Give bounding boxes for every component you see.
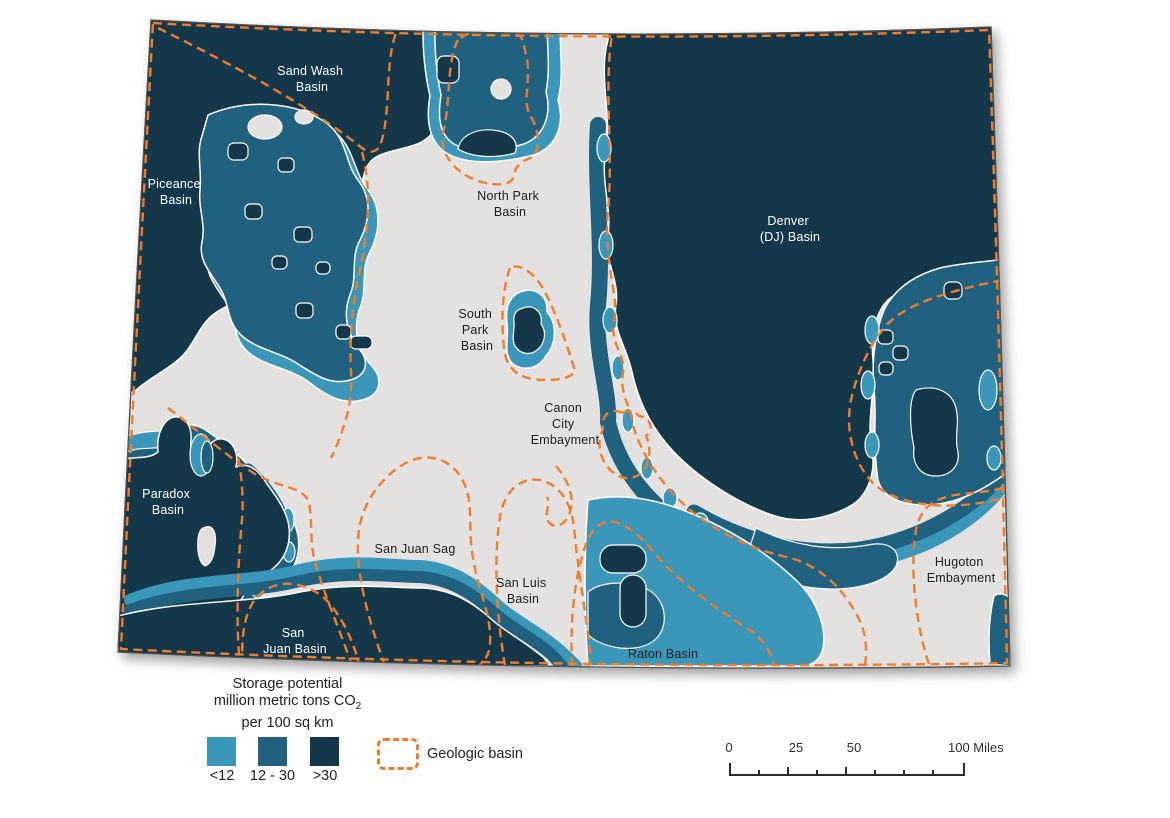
legend-title-line3: per 100 sq km xyxy=(180,715,395,732)
scale-bar-line xyxy=(729,774,965,776)
scale-bar-tick xyxy=(729,763,731,776)
scale-bar-tick xyxy=(787,767,789,776)
raton-dark-pill xyxy=(620,575,646,627)
scale-bar-tick xyxy=(845,767,847,776)
scale-tick-label-50: 50 xyxy=(840,740,868,755)
legend-class-label-gt30: >30 xyxy=(306,768,344,784)
scale-bar-tick xyxy=(874,770,876,776)
paradox-notch-medium xyxy=(201,441,213,473)
scale-tick-label-0: 0 xyxy=(722,740,736,755)
raton-dark-spot xyxy=(600,545,646,573)
scale-bar-tick xyxy=(903,770,905,776)
legend-title-line1: Storage potential xyxy=(180,676,395,693)
region-left-edge-light xyxy=(112,62,139,113)
scale-bar-tick xyxy=(816,770,818,776)
colorado-storage-map: Sand Wash Basin Piceance Basin North Par… xyxy=(0,0,1170,818)
legend-title: Storage potential million metric tons CO… xyxy=(180,676,395,732)
co2-subscript: 2 xyxy=(356,701,362,712)
geologic-basin-label: Geologic basin xyxy=(427,742,523,766)
scale-bar-tick xyxy=(932,770,934,776)
page: { "colors": { "class_lt12": "#3A97BA", "… xyxy=(0,0,1170,818)
legend-swatch-lt12 xyxy=(207,737,236,766)
scale-bar-tick xyxy=(758,770,760,776)
scale-tick-label-25: 25 xyxy=(782,740,810,755)
geologic-basin-symbol xyxy=(377,738,419,770)
legend-class-label-12-30: 12 - 30 xyxy=(244,768,301,784)
legend-class-label-lt12: <12 xyxy=(203,768,241,784)
label-south-park-basin: South Park Basin xyxy=(458,307,495,353)
region-south-park-dark xyxy=(513,307,544,354)
legend-swatch-12-30 xyxy=(258,737,287,766)
label-raton-basin: Raton Basin xyxy=(628,647,698,661)
legend-title-line2: million metric tons CO2 xyxy=(180,693,395,715)
scale-bar: 0 25 50 100 Miles xyxy=(722,740,1022,778)
scale-end-label: 100 Miles xyxy=(948,740,1018,755)
label-san-juan-sag: San Juan Sag xyxy=(375,542,456,556)
legend-swatch-gt30 xyxy=(310,737,339,766)
scale-bar-tick xyxy=(963,763,965,776)
